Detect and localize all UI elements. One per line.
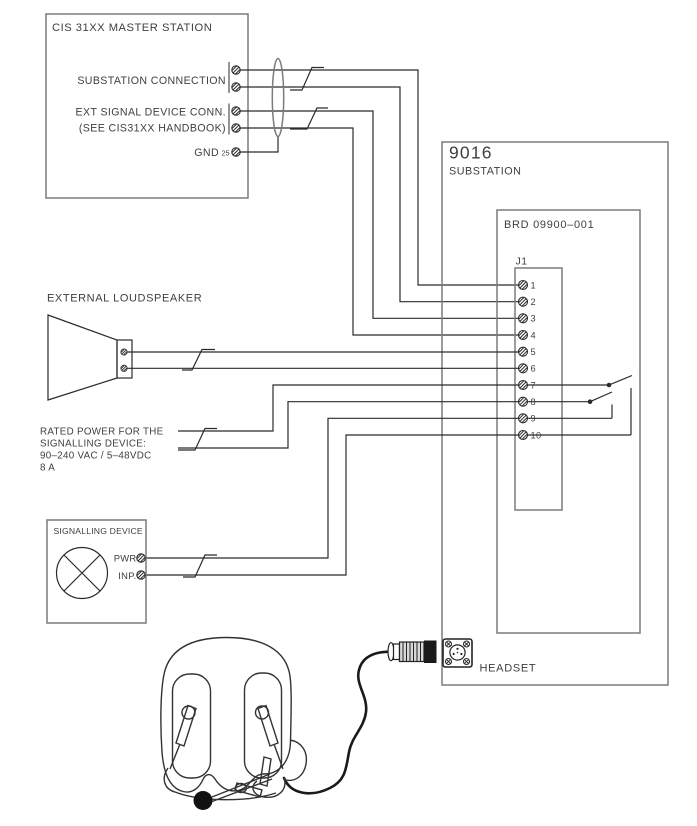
gnd-label: GND: [194, 147, 219, 159]
switch-b-blade: [590, 392, 612, 402]
ext-signal-label-line2: (SEE CIS31XX HANDBOOK): [79, 123, 226, 135]
cable-slash-power: [178, 429, 217, 451]
j1-label: J1: [516, 256, 528, 268]
yoke-arm-right: [258, 706, 278, 747]
terminal-substation-b: [232, 83, 240, 91]
j1-pins: 1 2 3 4 5 6 7 8 9 10: [519, 280, 542, 440]
master-station: CIS 31XX MASTER STATION SUBSTATION CONNE…: [46, 14, 248, 198]
gnd-pin-number: 25: [222, 148, 230, 157]
field-wires: [128, 350, 519, 578]
pin-7: [519, 381, 528, 390]
pin-10-label: 10: [531, 430, 542, 440]
plug-collar: [394, 644, 400, 660]
pin-3-label: 3: [531, 314, 537, 324]
pin-3: [519, 314, 528, 323]
ear-cushion-left: [173, 674, 211, 778]
headset-label: HEADSET: [480, 663, 537, 675]
wiring-diagram: CIS 31XX MASTER STATION SUBSTATION CONNE…: [0, 0, 697, 826]
yoke-arm-left: [176, 706, 196, 747]
headset-plug: [284, 641, 437, 794]
pin-8: [519, 397, 528, 406]
headset-drawing: [161, 638, 307, 811]
substation-name: SUBSTATION: [449, 166, 521, 178]
socket-screw-bl: [446, 659, 452, 665]
power-note-line4: 8 A: [40, 463, 55, 474]
board-switches: [528, 376, 633, 436]
inp-label: INP.: [118, 570, 136, 581]
substation-model: 9016: [449, 143, 493, 163]
pin-9: [519, 414, 528, 423]
wire-pin9-to-pwr: [146, 418, 519, 558]
speaker-terminal-b: [121, 365, 127, 371]
speaker-driver: [117, 340, 132, 378]
pin-2-label: 2: [531, 297, 537, 307]
speaker-horn: [48, 315, 117, 400]
pin-7-label: 7: [531, 380, 537, 390]
rated-power-note: RATED POWER FOR THE SIGNALLING DEVICE: 9…: [40, 427, 164, 474]
external-loudspeaker: EXTERNAL LOUDSPEAKER: [47, 293, 202, 401]
pin-9-label: 9: [531, 414, 537, 424]
wire-pin8-to-power: [178, 402, 519, 448]
headset-shell: [161, 638, 291, 793]
headset-cable: [284, 652, 389, 794]
fold-loop-right: [286, 740, 306, 780]
pin-1: [519, 281, 528, 290]
socket-screw-tr: [464, 641, 470, 647]
terminal-gnd: [232, 148, 240, 156]
pin-6-label: 6: [531, 364, 537, 374]
terminal-ext-signal-b: [232, 124, 240, 132]
wire-pin7-to-power: [178, 385, 519, 431]
substation-connection-label: SUBSTATION CONNECTION: [77, 75, 226, 87]
speaker-terminal-a: [121, 349, 127, 355]
loudspeaker-title: EXTERNAL LOUDSPEAKER: [47, 293, 202, 305]
pwr-label: PWR: [114, 553, 137, 564]
inp-terminal: [137, 571, 145, 579]
board-box: [497, 210, 640, 633]
pin-1-label: 1: [531, 280, 537, 290]
socket-screw-br: [464, 659, 470, 665]
microphone: [194, 791, 213, 810]
power-note-line3: 90–240 VAC / 5–48VDC: [40, 451, 151, 462]
pin-5: [519, 347, 528, 356]
pin-5-label: 5: [531, 347, 537, 357]
pin-2: [519, 297, 528, 306]
wire-sub-conn-1-to-pin1: [241, 70, 519, 285]
yoke-wire-left: [170, 744, 180, 769]
wire-pin10-to-inp: [146, 435, 519, 575]
signalling-device: SIGNALLING DEVICE PWR INP.: [47, 520, 146, 623]
signalling-device-title: SIGNALLING DEVICE: [54, 526, 143, 536]
pwr-terminal: [137, 554, 145, 562]
board-title: BRD 09900–001: [504, 219, 594, 231]
power-note-line1: RATED POWER FOR THE: [40, 427, 164, 438]
headset-port: HEADSET: [443, 639, 536, 675]
power-note-line2: SIGNALLING DEVICE:: [40, 439, 146, 450]
lamp-cross: [64, 555, 100, 591]
socket-screw-tl: [446, 641, 452, 647]
terminal-ext-signal-a: [232, 107, 240, 115]
ext-signal-label-line1: EXT SIGNAL DEVICE CONN.: [76, 107, 226, 119]
substation-9016: 9016 SUBSTATION BRD 09900–001 J1: [442, 142, 668, 685]
pin-4: [519, 331, 528, 340]
pin-8-label: 8: [531, 397, 537, 407]
wire-gnd-to-shield: [241, 137, 279, 153]
plug-locking-ring: [424, 641, 437, 664]
terminal-substation-a: [232, 66, 240, 74]
master-to-substation-wires: [241, 59, 519, 336]
pin-4-label: 4: [531, 330, 537, 340]
pin-10: [519, 431, 528, 440]
master-station-title: CIS 31XX MASTER STATION: [52, 22, 212, 34]
wiring-diagram-page: CIS 31XX MASTER STATION SUBSTATION CONNE…: [0, 0, 697, 826]
switch-a-blade: [609, 376, 632, 386]
pin-6: [519, 364, 528, 373]
